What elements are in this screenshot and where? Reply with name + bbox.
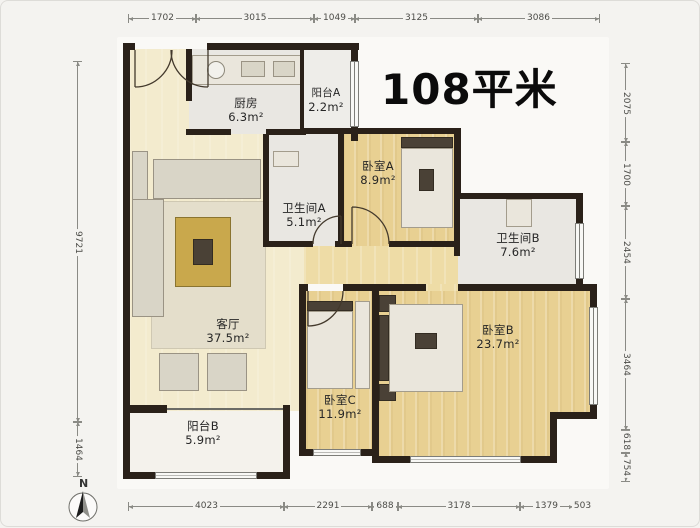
dim-value: 3015: [242, 14, 269, 23]
dim-value: 1700: [621, 161, 630, 188]
dim-bottom-3: 688: [371, 502, 399, 511]
dim-value: 3086: [525, 14, 552, 23]
compass-icon: [1, 1, 700, 528]
dim-value: 1464: [73, 436, 82, 463]
dim-value: 9721: [73, 229, 82, 256]
dim-value: 1702: [149, 14, 176, 23]
dim-bottom-6: 503: [572, 502, 593, 511]
floor-plan-page: { "title": "108平米", "compass": { "label"…: [0, 0, 700, 527]
dim-value: 2075: [621, 90, 630, 117]
dim-value: 3178: [446, 502, 473, 511]
dim-value: 2454: [621, 239, 630, 266]
dim-value: 754: [621, 456, 630, 477]
dim-value: 1379: [533, 502, 560, 511]
dim-value: 688: [374, 502, 395, 511]
dim-value: 3464: [621, 351, 630, 378]
photo-frame: 厨房 6.3m² 阳台A 2.2m² 卧室A 8.9m² 卫生间A 5.1m² …: [0, 0, 700, 527]
dim-right-5: 618: [621, 429, 630, 454]
dim-value: 1049: [321, 14, 348, 23]
dim-value: 618: [621, 431, 630, 452]
dim-right-6: 754: [621, 452, 630, 482]
dim-value: 3125: [403, 14, 430, 23]
dim-value: 2291: [315, 502, 342, 511]
dim-value: 4023: [193, 502, 220, 511]
dim-value: 503: [572, 502, 593, 511]
